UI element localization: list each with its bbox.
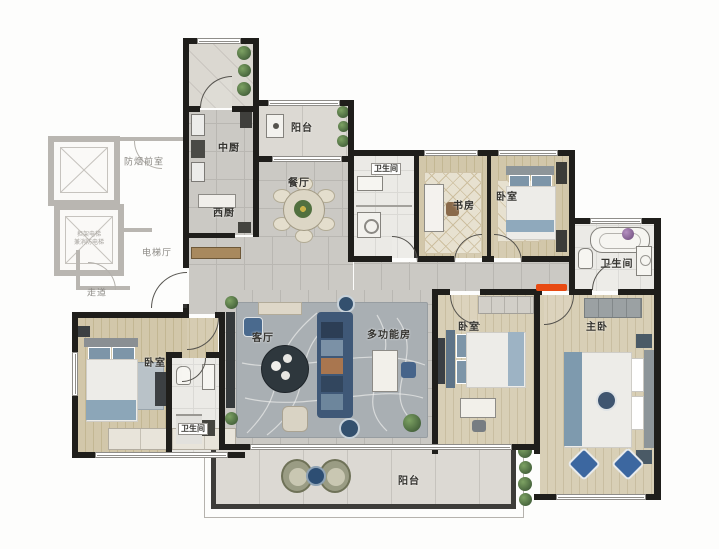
nightstand [78,326,90,337]
pillow [630,396,644,430]
sofa-cushion [321,358,343,374]
wall [183,38,189,112]
corridor-label: 走道 [87,289,107,298]
elevator-cross-icon [61,148,107,192]
headboard [84,338,138,347]
sofa-cushion [321,322,343,338]
master-bedroom-label: 主卧 [586,323,608,333]
study-label: 书房 [453,202,475,212]
shower-glass [356,205,412,207]
floor-plan: 担架电梯 兼消防电梯 防烟前室 电梯厅 走道 [0,0,719,549]
desk-chair [472,420,486,432]
vanity-sink [636,246,652,276]
plant [238,64,251,77]
headboard [446,330,455,388]
window [424,150,478,156]
appliance [238,222,251,233]
room-balcony-bottom [216,450,511,504]
sofa-cushion [321,394,343,410]
dining-chair [295,229,313,243]
window [197,38,241,44]
wall [219,444,250,450]
plant [403,414,421,432]
window [72,352,78,396]
window [268,100,340,106]
wall [219,312,225,450]
wardrobe [584,298,642,318]
bed-throw [564,352,582,446]
multifunction-label: 多功能房 [367,331,411,341]
living-label: 客厅 [252,334,274,344]
wall [654,218,661,500]
wall [414,156,419,258]
bath-top-label: 卫生间 [371,163,401,175]
bathtub-basin [599,233,641,249]
elevator-hall-label: 电梯厅 [142,249,172,258]
dining-table [283,189,325,231]
fridge [191,114,205,136]
wall [348,100,354,156]
plate [281,371,290,380]
wall [534,289,540,454]
pantry-cabinet [240,112,252,128]
plant [225,412,238,425]
west-kitchen-label: 西厨 [213,209,235,219]
wall [482,256,494,262]
wall [124,228,152,232]
plant [519,461,532,474]
chinese-kitchen-label: 中厨 [218,144,240,154]
bed [84,338,138,422]
nightstand [636,334,652,348]
bed-decor [596,390,617,411]
chair-cushion [327,468,345,486]
desk [460,398,496,418]
vestibule-label: 防烟前室 [124,158,164,167]
pouf [337,295,355,313]
bathroom-sink [357,176,383,191]
window-sliding-door [250,444,512,450]
window [272,156,342,162]
wall [522,256,575,262]
flower-decor [622,228,634,240]
wall [618,289,661,295]
basin-icon [640,255,651,266]
window [95,452,228,458]
hallway [189,290,225,314]
nightstand [556,230,567,252]
armchair-cream [282,406,308,432]
headboard [644,350,654,448]
pillow [630,358,644,392]
bed-throw [506,220,554,232]
wall [166,358,172,452]
bench [258,302,302,315]
hallway [189,237,353,292]
dining-set [275,181,331,237]
plant [225,296,238,309]
elevator-note: 担架电梯 兼消防电梯 [74,232,104,248]
wall [253,162,259,237]
tv-console [438,338,445,384]
plant [518,477,532,491]
elevator-shaft-1 [48,136,120,206]
side-table [306,466,326,486]
bed-throw [86,400,136,420]
coffee-table [261,345,309,393]
wall [348,156,354,262]
bedroom-bottom-left-label: 卧室 [144,359,166,369]
elevator-car-1 [60,147,108,193]
wall [572,289,592,295]
toilet [578,248,593,269]
balcony-parapet [211,504,516,509]
drain-icon [273,123,279,129]
nightstand [556,162,567,184]
multifunction-desk [372,350,398,392]
wall [512,444,540,450]
bedroom-top-right-label: 卧室 [496,193,518,203]
wall [183,233,235,238]
desk [424,184,444,232]
wall [183,106,189,268]
west-kitchen-island [198,194,236,208]
plant [237,82,251,96]
wall [646,494,661,500]
wall [166,352,182,358]
bed-master [560,350,654,448]
window [556,494,646,500]
wall [228,452,245,458]
washing-machine [357,212,381,238]
bed-throw [508,332,524,386]
wall [76,250,80,290]
plate [271,361,281,371]
sofa-cushion [321,340,343,356]
wall [206,352,219,358]
wall [432,289,438,454]
closet [478,296,534,314]
pouf [339,418,360,439]
bedroom-mid-right-label: 卧室 [458,323,480,333]
window [590,218,642,224]
oven [191,140,205,158]
bath-bottom-left-label: 卫生间 [178,423,208,435]
wardrobe [108,428,236,450]
balcony-top-label: 阳台 [291,124,313,134]
flower-centerpiece [294,200,312,218]
laundry-sink [266,114,284,138]
plant [519,493,532,506]
window [498,150,558,156]
vanity-sink [202,364,215,390]
headboard [506,166,554,175]
wall [232,106,259,112]
wall [534,494,556,500]
wall [72,452,95,458]
kitchen-counter [191,162,205,182]
sofa-cushion [321,376,343,392]
balcony-bottom-label: 阳台 [398,477,420,487]
chair-cushion [289,468,307,486]
wall [480,289,540,295]
shoe-bench [191,247,241,259]
wall [487,156,491,258]
bed [446,330,524,388]
plant [237,46,251,60]
plate [283,354,292,363]
dining-label: 餐厅 [288,179,310,189]
washer-door-icon [364,219,379,234]
bath-master-label: 卫生间 [601,260,634,270]
balcony-parapet [511,450,516,509]
balcony-parapet [211,450,216,508]
entry-door-arc [151,272,187,308]
wall [348,256,392,262]
wall [72,312,185,318]
wall [418,256,454,262]
tv-console [226,312,235,408]
red-annotation-mark [536,284,567,291]
desk-chair [401,362,416,378]
sofa [317,312,353,418]
